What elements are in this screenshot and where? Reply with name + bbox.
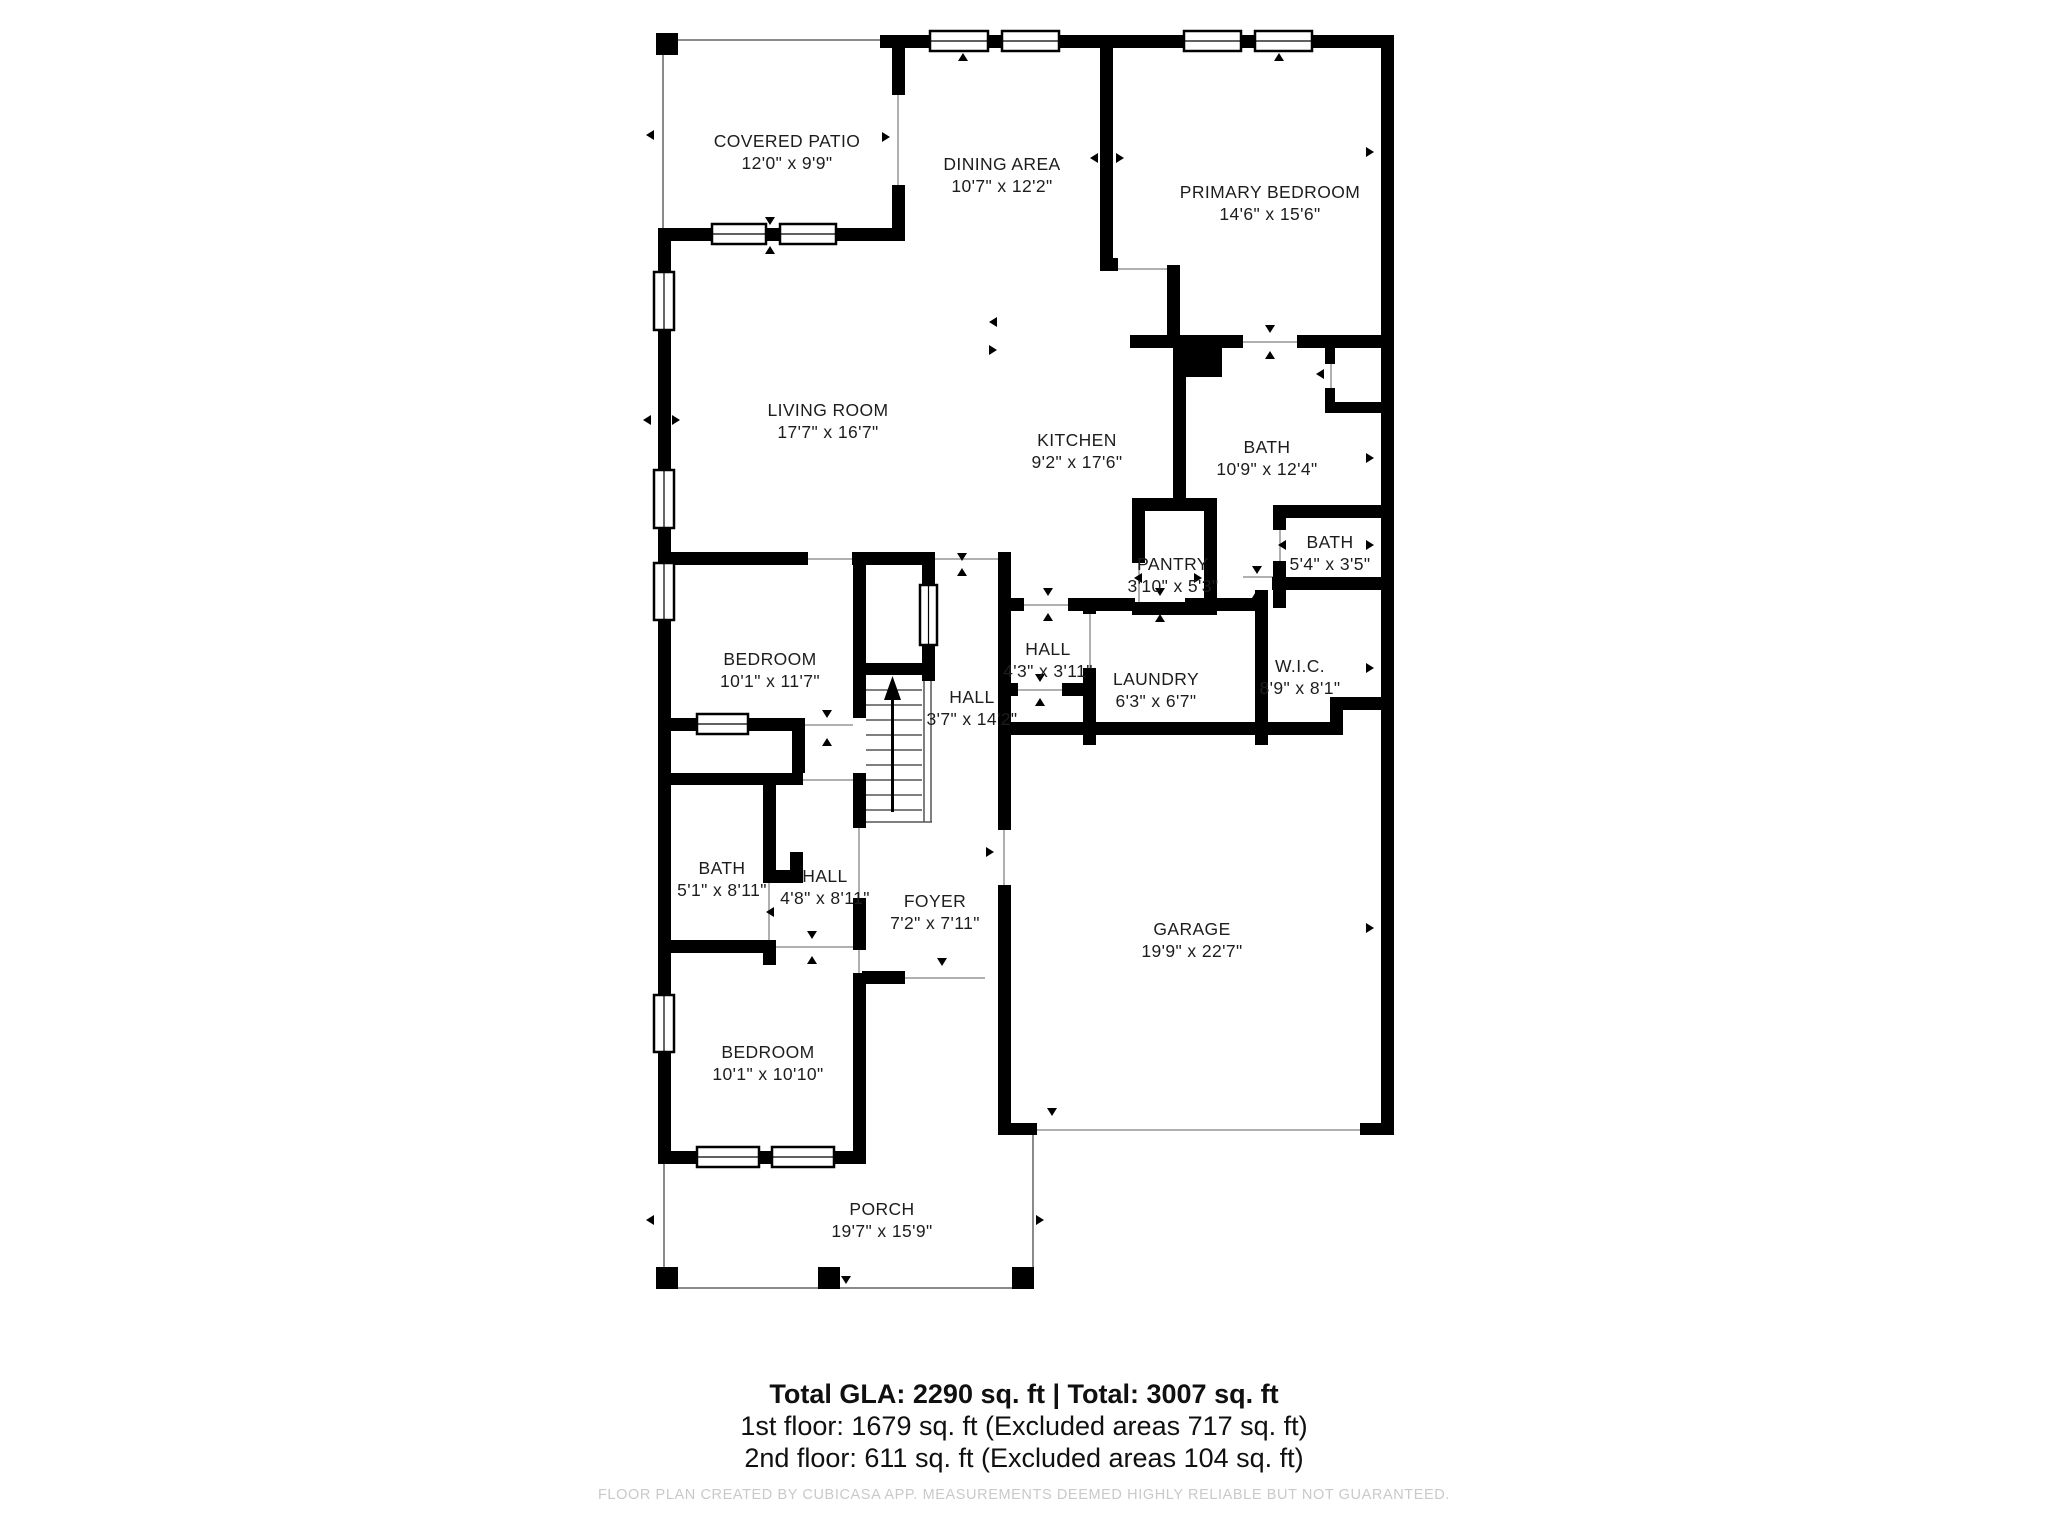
room-dimensions: 3'7" x 14'2" <box>926 708 1017 730</box>
door-opening-line <box>1037 1129 1360 1131</box>
stairs <box>866 676 932 822</box>
wall <box>1167 265 1180 338</box>
window-icon <box>930 31 988 51</box>
measure-arrow-icon <box>1116 153 1124 163</box>
wall <box>922 552 935 585</box>
wall <box>1100 35 1113 270</box>
measure-arrow-icon <box>822 738 832 746</box>
room-dimensions: 10'1" x 10'10" <box>712 1063 823 1085</box>
measure-arrow-icon <box>957 568 967 576</box>
wall <box>658 1151 697 1164</box>
wall <box>836 228 905 241</box>
room-label-wic: W.I.C.8'9" x 8'1" <box>1260 655 1341 699</box>
wall <box>1325 348 1335 364</box>
door-opening-line <box>1243 341 1297 343</box>
room-name: HALL <box>802 866 847 886</box>
room-label-kitchen: KITCHEN9'2" x 17'6" <box>1031 429 1122 473</box>
room-label-primary-bedroom: PRIMARY BEDROOM14'6" x 15'6" <box>1180 181 1360 225</box>
room-dimensions: 19'7" x 15'9" <box>831 1220 932 1242</box>
wall <box>1130 335 1243 348</box>
room-label-bath-primary: BATH10'9" x 12'4" <box>1216 436 1317 480</box>
wall <box>656 33 678 55</box>
room-name: BEDROOM <box>721 1042 814 1062</box>
wall <box>1100 258 1118 271</box>
wall <box>1241 35 1255 48</box>
measure-arrow-icon <box>1036 1215 1044 1225</box>
window-icon <box>697 1147 759 1167</box>
patio-porch-line <box>663 1287 1034 1289</box>
window-icon <box>697 714 748 734</box>
wall <box>1132 498 1217 511</box>
room-name: PANTRY <box>1137 554 1209 574</box>
room-name: DINING AREA <box>943 154 1060 174</box>
window-icon <box>1255 31 1312 51</box>
wall <box>759 1151 772 1164</box>
room-name: HALL <box>1025 639 1070 659</box>
measure-arrow-icon <box>765 246 775 254</box>
measure-arrow-icon <box>1366 923 1374 933</box>
wall <box>1083 598 1096 614</box>
room-dimensions: 4'8" x 8'11" <box>780 887 870 909</box>
wall <box>1059 35 1100 48</box>
wall <box>658 552 808 565</box>
measure-arrow-icon <box>807 956 817 964</box>
room-dimensions: 9'2" x 17'6" <box>1031 451 1122 473</box>
measure-arrow-icon <box>1274 53 1284 61</box>
room-label-covered-patio: COVERED PATIO12'0" x 9'9" <box>714 130 861 174</box>
room-name: BATH <box>1244 437 1291 457</box>
measure-arrow-icon <box>989 317 997 327</box>
wall <box>853 773 866 828</box>
room-label-bedroom-lower: BEDROOM10'1" x 10'10" <box>712 1041 823 1085</box>
wall <box>1173 348 1222 377</box>
room-dimensions: 7'2" x 7'11" <box>890 912 980 934</box>
measure-arrow-icon <box>1265 325 1275 333</box>
wall <box>1360 1123 1394 1135</box>
measure-arrow-icon <box>807 931 817 939</box>
room-name: BEDROOM <box>723 649 816 669</box>
door-opening-line <box>805 724 853 726</box>
measure-arrow-icon <box>1047 1108 1057 1116</box>
measure-arrow-icon <box>1316 369 1324 379</box>
measure-arrow-icon <box>672 415 680 425</box>
wall <box>763 940 776 965</box>
window-icon <box>654 272 674 330</box>
room-dimensions: 6'3" x 6'7" <box>1113 690 1199 712</box>
window-icon <box>654 995 674 1052</box>
door-opening-line <box>934 558 998 560</box>
room-name: BATH <box>699 858 746 878</box>
room-dimensions: 10'7" x 12'2" <box>943 175 1060 197</box>
room-name: GARAGE <box>1153 919 1230 939</box>
room-dimensions: 4'3" x 3'11" <box>1003 660 1093 682</box>
wall <box>818 1267 840 1289</box>
room-label-garage: GARAGE19'9" x 22'7" <box>1141 918 1242 962</box>
wall <box>766 228 780 241</box>
room-dimensions: 8'9" x 8'1" <box>1260 677 1341 699</box>
room-dimensions: 5'4" x 3'5" <box>1290 553 1371 575</box>
wall <box>892 35 905 95</box>
window-icon <box>654 563 674 620</box>
measure-arrow-icon <box>1265 351 1275 359</box>
room-name: PORCH <box>849 1199 914 1219</box>
door-opening-line <box>776 946 853 948</box>
wall <box>998 722 1343 735</box>
room-label-bath-upper: BATH5'4" x 3'5" <box>1290 531 1371 575</box>
room-label-bath-lower: BATH5'1" x 8'11" <box>677 857 767 901</box>
wall <box>1185 598 1255 611</box>
wall <box>658 940 763 953</box>
measure-arrow-icon <box>841 1276 851 1284</box>
door-opening-line <box>905 977 985 979</box>
measure-arrow-icon <box>1155 614 1165 622</box>
window-icon <box>772 1147 834 1167</box>
window-icon <box>1184 31 1241 51</box>
window-icon <box>780 224 836 244</box>
door-opening-line <box>1330 364 1332 388</box>
room-dimensions: 5'1" x 8'11" <box>677 879 767 901</box>
measure-arrow-icon <box>1090 153 1098 163</box>
door-opening-line <box>808 558 852 560</box>
stairs-up-arrow-icon <box>884 676 901 812</box>
measure-arrow-icon <box>1252 566 1262 574</box>
room-dimensions: 3'10" x 5'3" <box>1127 575 1218 597</box>
wall <box>834 1151 866 1164</box>
room-name: HALL <box>949 687 994 707</box>
room-label-hall-stairs: HALL3'7" x 14'2" <box>926 686 1017 730</box>
room-dimensions: 12'0" x 9'9" <box>714 152 861 174</box>
patio-porch-line <box>662 39 880 41</box>
wall <box>656 1267 678 1289</box>
wall <box>998 1123 1037 1135</box>
room-label-dining-area: DINING AREA10'7" x 12'2" <box>943 153 1060 197</box>
room-dimensions: 17'7" x 16'7" <box>767 421 888 443</box>
measure-arrow-icon <box>989 345 997 355</box>
measure-arrow-icon <box>937 958 947 966</box>
floor-plan-drawing <box>0 0 2048 1536</box>
wall <box>922 645 935 681</box>
door-opening-line <box>1118 268 1167 270</box>
room-name: PRIMARY BEDROOM <box>1180 182 1360 202</box>
door-opening-line <box>897 95 899 185</box>
wall <box>792 718 805 773</box>
disclaimer-text: FLOOR PLAN CREATED BY CUBICASA APP. MEAS… <box>598 1487 1450 1503</box>
measure-arrow-icon <box>1366 147 1374 157</box>
patio-porch-line <box>1032 1134 1034 1289</box>
wall <box>1012 1267 1034 1289</box>
room-label-porch: PORCH19'7" x 15'9" <box>831 1198 932 1242</box>
measure-arrow-icon <box>1043 588 1053 596</box>
measure-arrow-icon <box>1366 663 1374 673</box>
wall <box>1062 683 1083 696</box>
room-label-laundry: LAUNDRY6'3" x 6'7" <box>1113 668 1199 712</box>
door-opening-line <box>803 779 858 781</box>
room-name: COVERED PATIO <box>714 131 861 151</box>
door-opening-line <box>858 950 860 973</box>
room-dimensions: 19'9" x 22'7" <box>1141 940 1242 962</box>
wall <box>1272 577 1394 590</box>
second-floor-line: 2nd floor: 611 sq. ft (Excluded areas 10… <box>740 1442 1307 1474</box>
wall <box>853 552 866 718</box>
window-icon <box>712 224 766 244</box>
window-icon <box>654 470 674 528</box>
wall <box>1068 598 1135 611</box>
measure-arrow-icon <box>646 1215 654 1225</box>
room-name: KITCHEN <box>1037 430 1117 450</box>
room-name: FOYER <box>904 891 966 911</box>
floor-plan-page: { "title": "Floor plan", "rooms": [ {"id… <box>0 0 2048 1536</box>
room-label-pantry: PANTRY3'10" x 5'3" <box>1127 553 1218 597</box>
room-name: BATH <box>1307 532 1354 552</box>
door-opening-line <box>1024 604 1068 606</box>
measure-arrow-icon <box>958 53 968 61</box>
measure-arrow-icon <box>1366 453 1374 463</box>
measure-arrow-icon <box>822 710 832 718</box>
wall <box>988 35 1002 48</box>
wall <box>1173 377 1186 511</box>
room-name: LIVING ROOM <box>767 400 888 420</box>
wall <box>1325 388 1335 404</box>
door-opening-line <box>1018 689 1062 691</box>
measure-arrow-icon <box>1035 698 1045 706</box>
window-icon <box>920 585 937 645</box>
room-label-hall-small: HALL4'3" x 3'11" <box>1003 638 1093 682</box>
wall <box>1330 697 1343 735</box>
measure-arrow-icon <box>1043 613 1053 621</box>
first-floor-line: 1st floor: 1679 sq. ft (Excluded areas 7… <box>740 1410 1307 1442</box>
room-label-hall-lower: HALL4'8" x 8'11" <box>780 865 870 909</box>
room-dimensions: 10'9" x 12'4" <box>1216 458 1317 480</box>
room-name: W.I.C. <box>1275 656 1325 676</box>
wall <box>1325 402 1394 413</box>
wall <box>998 885 1011 1123</box>
measure-arrow-icon <box>643 415 651 425</box>
room-dimensions: 14'6" x 15'6" <box>1180 203 1360 225</box>
window-icon <box>1002 31 1059 51</box>
patio-porch-line <box>662 39 664 230</box>
door-opening-line <box>1003 830 1005 885</box>
measure-arrow-icon <box>882 132 890 142</box>
measure-arrow-icon <box>646 130 654 140</box>
room-label-bedroom-upper: BEDROOM10'1" x 11'7" <box>720 648 820 692</box>
door-opening-line <box>1243 576 1273 578</box>
wall <box>1273 518 1286 530</box>
wall <box>658 718 697 731</box>
wall <box>862 971 905 984</box>
wall <box>853 973 866 1164</box>
room-label-living-room: LIVING ROOM17'7" x 16'7" <box>767 399 888 443</box>
room-label-foyer: FOYER7'2" x 7'11" <box>890 890 980 934</box>
wall <box>658 773 803 785</box>
measure-arrow-icon <box>986 847 994 857</box>
total-gla-line: Total GLA: 2290 sq. ft | Total: 3007 sq.… <box>740 1378 1307 1410</box>
wall <box>862 663 922 675</box>
room-name: LAUNDRY <box>1113 669 1199 689</box>
wall <box>748 718 792 731</box>
room-dimensions: 10'1" x 11'7" <box>720 670 820 692</box>
area-summary: Total GLA: 2290 sq. ft | Total: 3007 sq.… <box>740 1378 1307 1474</box>
wall <box>1297 335 1394 348</box>
